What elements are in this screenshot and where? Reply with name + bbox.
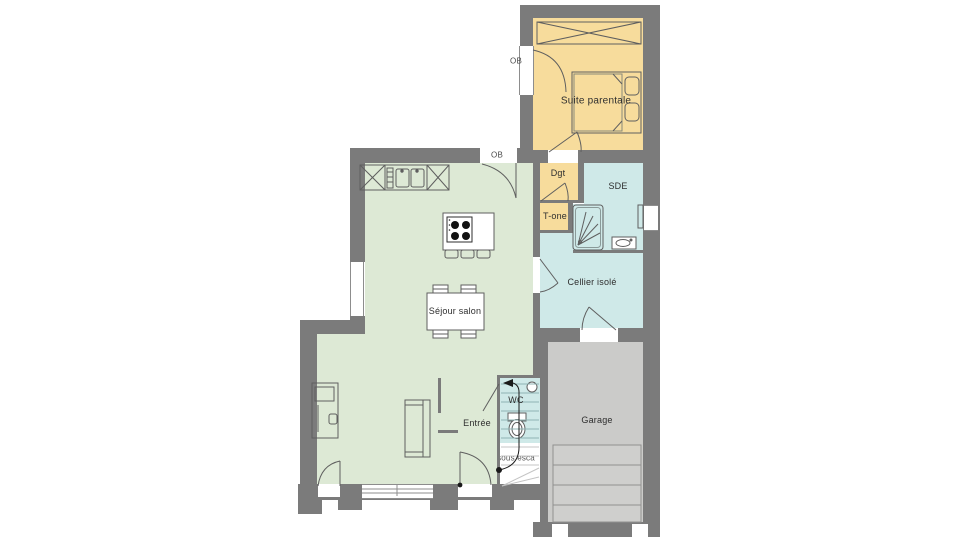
- door-arc-cellier-garage: [582, 307, 616, 330]
- floor-plan-canvas: Suite parentale OB OB Dgt T-one SDE Cell…: [0, 0, 960, 540]
- door-arc-kitchen-ob: [482, 163, 516, 198]
- kitchen-island-icon: [443, 213, 494, 258]
- toilet-icon: [508, 413, 526, 439]
- room-label-sde: SDE: [608, 181, 627, 191]
- bay-window-frame: [362, 485, 433, 496]
- washbasin-icon: [612, 205, 643, 249]
- garage-door-icon: [553, 445, 641, 522]
- shower-icon: [573, 205, 603, 250]
- stairs-lower-icon: [501, 447, 539, 486]
- door-arc-wc: [483, 384, 499, 411]
- door-arc-suite-window: [533, 50, 566, 92]
- room-label-t-one: T-one: [543, 211, 567, 221]
- kitchen-sink-icon: [385, 165, 427, 190]
- plan-linework: [0, 0, 960, 540]
- door-arc-terrace: [318, 461, 340, 486]
- room-label-suite-parentale: Suite parentale: [561, 96, 631, 107]
- door-label-ob-kitchen: OB: [491, 151, 503, 160]
- door-arc-front: [458, 452, 491, 487]
- window-label-ob-suite: OB: [510, 57, 522, 66]
- door-arc-suite-dgt: [549, 132, 581, 152]
- room-label-entree: Entrée: [463, 418, 491, 428]
- room-label-cellier: Cellier isolé: [567, 277, 616, 287]
- room-label-garage: Garage: [581, 415, 612, 425]
- room-label-dgt: Dgt: [551, 168, 566, 178]
- room-label-sejour-salon: Séjour salon: [429, 306, 481, 316]
- closet-icon: [537, 22, 641, 44]
- sofa-icon: [405, 400, 430, 457]
- desk-icon: [312, 383, 338, 438]
- room-label-wc: WC: [508, 395, 523, 405]
- door-arc-dgt-tone: [541, 183, 568, 201]
- door-arc-cellier: [540, 259, 558, 292]
